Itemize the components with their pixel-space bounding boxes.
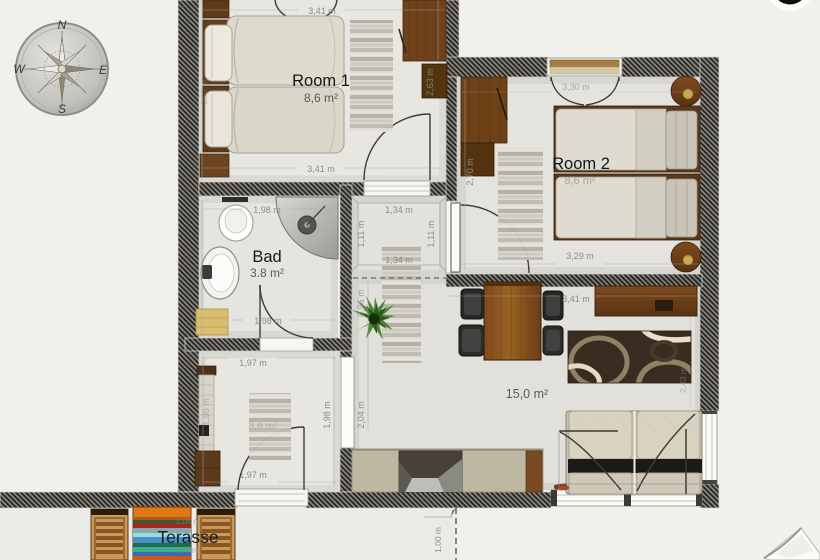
svg-text:1,11 m: 1,11 m xyxy=(426,221,436,248)
svg-text:Room 1: Room 1 xyxy=(292,72,350,90)
svg-text:3,29 m: 3,29 m xyxy=(566,251,594,261)
svg-text:1,05 m: 1,05 m xyxy=(176,517,201,526)
svg-text:E: E xyxy=(99,63,108,77)
svg-text:8,6 m²: 8,6 m² xyxy=(564,175,596,187)
svg-text:3,30 m: 3,30 m xyxy=(562,82,590,92)
svg-text:2,02 m: 2,02 m xyxy=(200,79,209,104)
svg-text:3,41 m: 3,41 m xyxy=(307,164,335,174)
svg-text:1,97 m: 1,97 m xyxy=(239,358,267,368)
svg-text:1,00 m: 1,00 m xyxy=(433,527,443,553)
svg-text:1,11 m: 1,11 m xyxy=(356,221,366,248)
svg-text:1,34 m: 1,34 m xyxy=(385,205,413,215)
svg-text:Room 2: Room 2 xyxy=(552,155,610,173)
svg-text:1,98 m: 1,98 m xyxy=(322,401,332,429)
svg-text:3,6 m²: 3,6 m² xyxy=(248,420,278,432)
svg-text:2,43 m: 2,43 m xyxy=(678,367,688,393)
svg-text:0,96 m: 0,96 m xyxy=(356,289,366,317)
svg-text:8,6 m²: 8,6 m² xyxy=(304,91,338,105)
svg-text:S: S xyxy=(58,102,66,116)
svg-text:1,50 m: 1,50 m xyxy=(174,546,199,555)
svg-text:Terasse: Terasse xyxy=(157,527,218,547)
svg-text:1,98 m: 1,98 m xyxy=(201,398,211,426)
svg-text:2,63 m: 2,63 m xyxy=(425,68,435,96)
svg-text:1,34 m: 1,34 m xyxy=(385,255,413,265)
svg-text:3,41 m: 3,41 m xyxy=(562,294,590,304)
svg-text:2,70 m: 2,70 m xyxy=(465,158,475,186)
svg-text:N: N xyxy=(58,18,67,32)
svg-text:15,0 m²: 15,0 m² xyxy=(506,387,548,401)
svg-text:Bad: Bad xyxy=(252,248,281,266)
svg-text:2,04 m: 2,04 m xyxy=(356,401,366,429)
svg-text:1,98 m: 1,98 m xyxy=(254,316,282,326)
svg-text:W: W xyxy=(13,62,26,76)
svg-text:3,41 m: 3,41 m xyxy=(308,6,336,16)
svg-text:1,97 m: 1,97 m xyxy=(239,470,267,480)
svg-text:1,98 m: 1,98 m xyxy=(253,205,281,215)
svg-text:3.8 m²: 3.8 m² xyxy=(250,266,284,280)
